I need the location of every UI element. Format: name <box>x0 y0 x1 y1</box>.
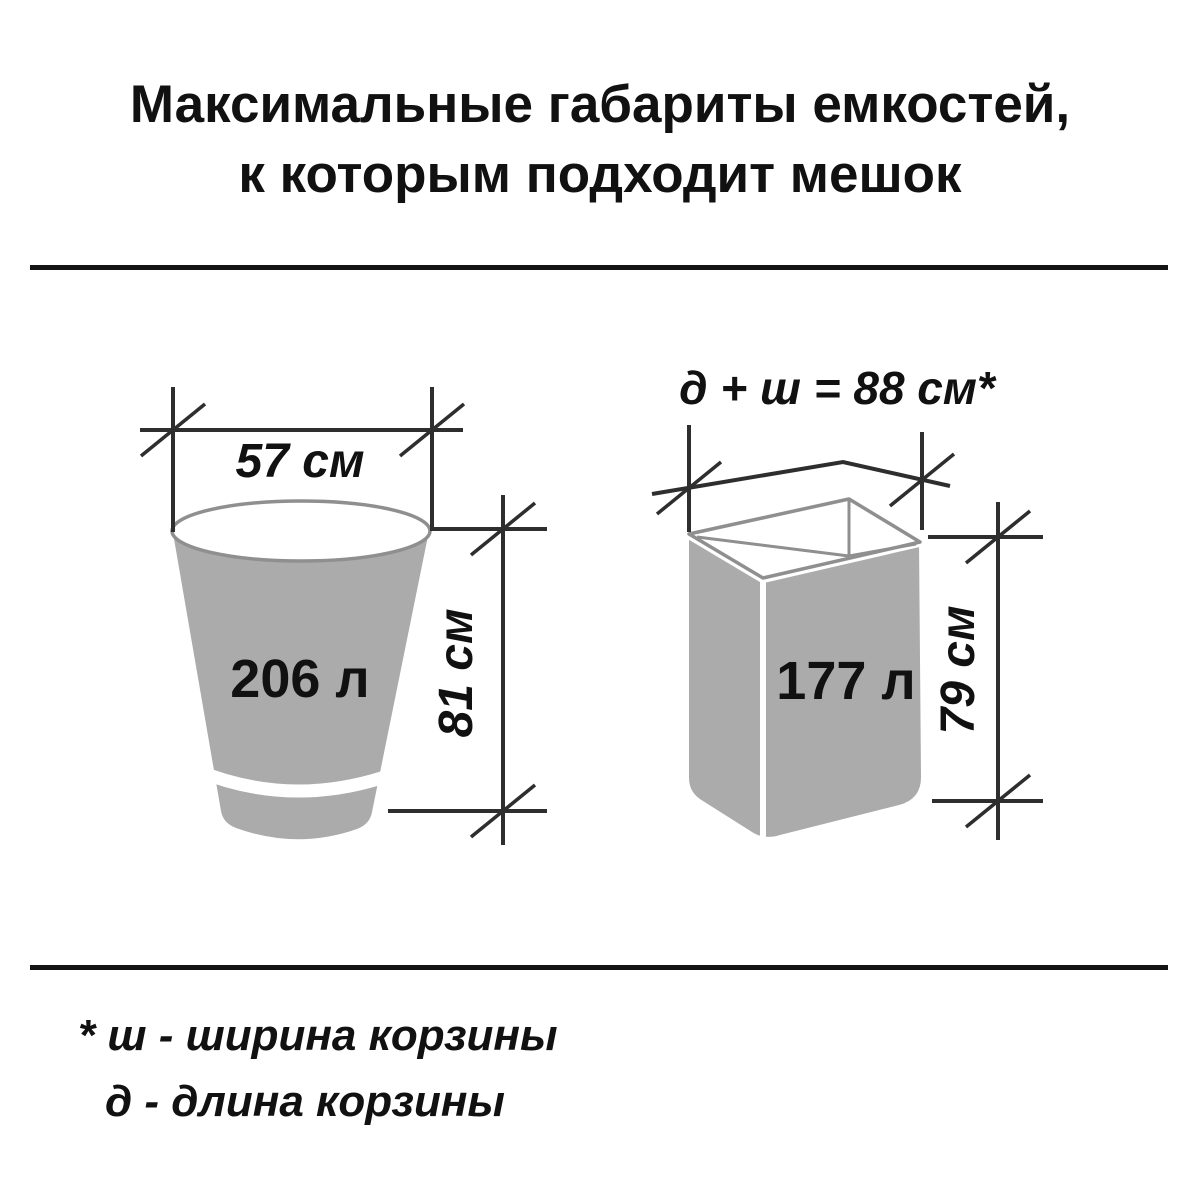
bucket-width-label: 57 см <box>150 434 450 489</box>
bucket-volume-label: 206 л <box>160 648 440 710</box>
bottom-divider <box>30 965 1168 970</box>
footnote-block: * ш - ширина корзины д - длина корзины <box>78 1008 778 1130</box>
bucket-height-label: 81 см <box>428 573 486 773</box>
infographic-canvas: Максимальные габариты емкостей, к которы… <box>0 0 1200 1200</box>
basket-height-label: 79 см <box>930 570 988 770</box>
page-title: Максимальные габариты емкостей, к которы… <box>0 70 1200 210</box>
footnote-length-definition: д - длина корзины <box>78 1074 778 1130</box>
footnote-width-definition: * ш - ширина корзины <box>78 1008 778 1064</box>
page-title-line2: к которым подходит мешок <box>0 140 1200 210</box>
dimension-line <box>652 462 950 494</box>
top-divider <box>30 265 1168 270</box>
bucket-rim-ellipse <box>172 501 430 561</box>
page-title-line1: Максимальные габариты емкостей, <box>0 70 1200 140</box>
basket-formula-label: д + ш = 88 см* <box>657 361 1017 415</box>
